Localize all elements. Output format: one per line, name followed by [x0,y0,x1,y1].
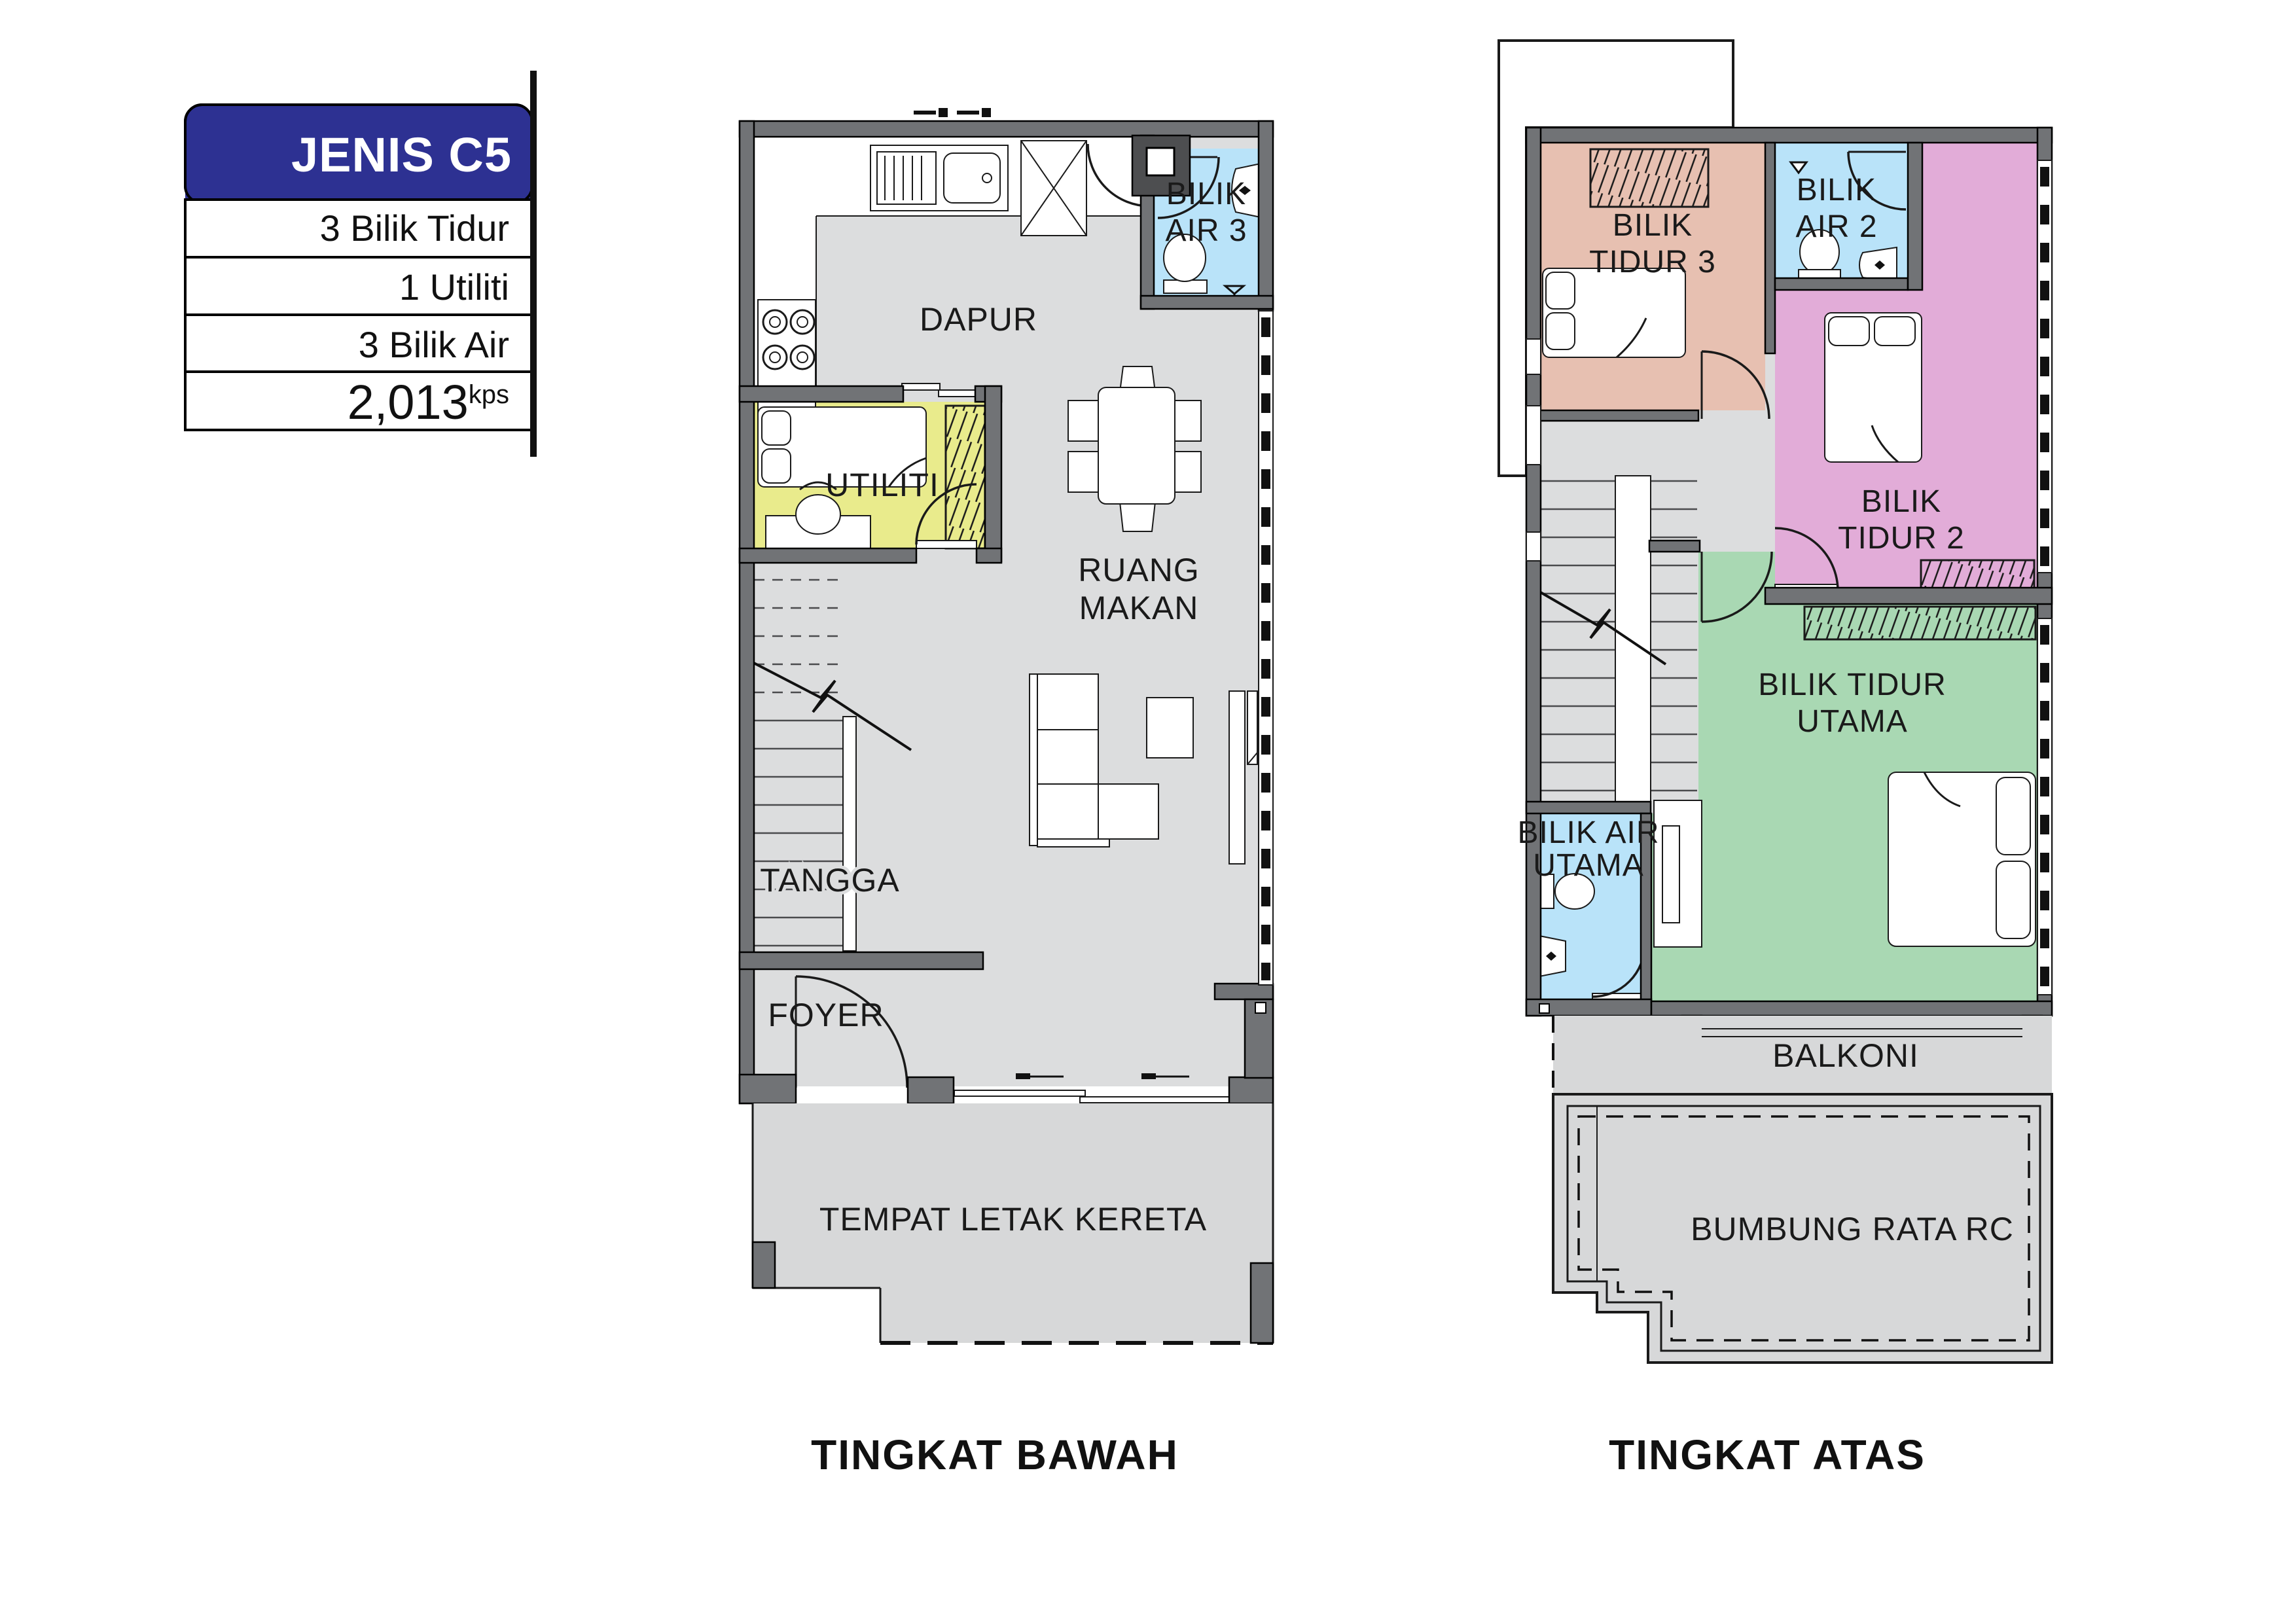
info-panel-rule [530,71,537,457]
room-label-bumbung-rata-rc: BUMBUNG RATA RC [1691,1211,2014,1247]
info-row-bathrooms: 3 Bilik Air [359,324,509,365]
room-label-balkoni: BALKONI [1772,1037,1919,1074]
ground-floor-plan: DAPUR BILIKAIR 3 UTILITI RUANGMAKAN TANG… [740,108,1273,1478]
floorplan-page: JENIS C5 3 Bilik Tidur 1 Utiliti 3 Bilik… [0,0,2296,1623]
info-panel-title: JENIS C5 [291,128,512,182]
kitchen-sink-icon [870,145,1008,211]
tall-cabinet-icon [1021,141,1086,236]
top-wall-vents [914,108,991,117]
room-label-dapur: DAPUR [920,301,1037,338]
info-area-value: 2,013 [348,375,469,429]
room-label-tempat-letak-kereta: TEMPAT LETAK KERETA [819,1201,1207,1238]
porch-post [1251,1263,1273,1343]
room-label-foyer: FOYER [768,997,884,1033]
room-label-utiliti: UTILITI [825,467,939,503]
upper-floor-plan: BILIKTIDUR 3 BILIKAIR 2 BILIKTIDUR 2 BIL… [1499,41,2052,1478]
master-wardrobe [1804,607,2036,639]
coffee-table [1147,698,1193,758]
master-dresser [1654,800,1702,947]
ground-floor-title: TINGKAT BAWAH [811,1431,1179,1478]
info-row-utility: 1 Utiliti [399,266,509,308]
room-label-bilik-air-utama: BILIK AIRUTAMA [1517,815,1659,883]
ground-right-wall-windows [1259,311,1273,985]
floorplan-canvas: JENIS C5 3 Bilik Tidur 1 Utiliti 3 Bilik… [0,0,2296,1623]
bedroom3-bed [1543,268,1685,357]
master-bed [1888,772,2036,946]
upper-floor-title: TINGKAT ATAS [1609,1431,1926,1478]
info-panel: JENIS C5 3 Bilik Tidur 1 Utiliti 3 Bilik… [185,71,537,457]
porch-post [753,1242,775,1288]
bedroom2-bed [1825,313,1922,462]
room-label-tangga: TANGGA [760,862,899,899]
utility-wardrobe [946,406,985,548]
info-row-bedrooms: 3 Bilik Tidur [320,207,509,249]
bedroom3-wardrobe [1590,149,1708,207]
info-area-unit: kps [469,380,509,409]
